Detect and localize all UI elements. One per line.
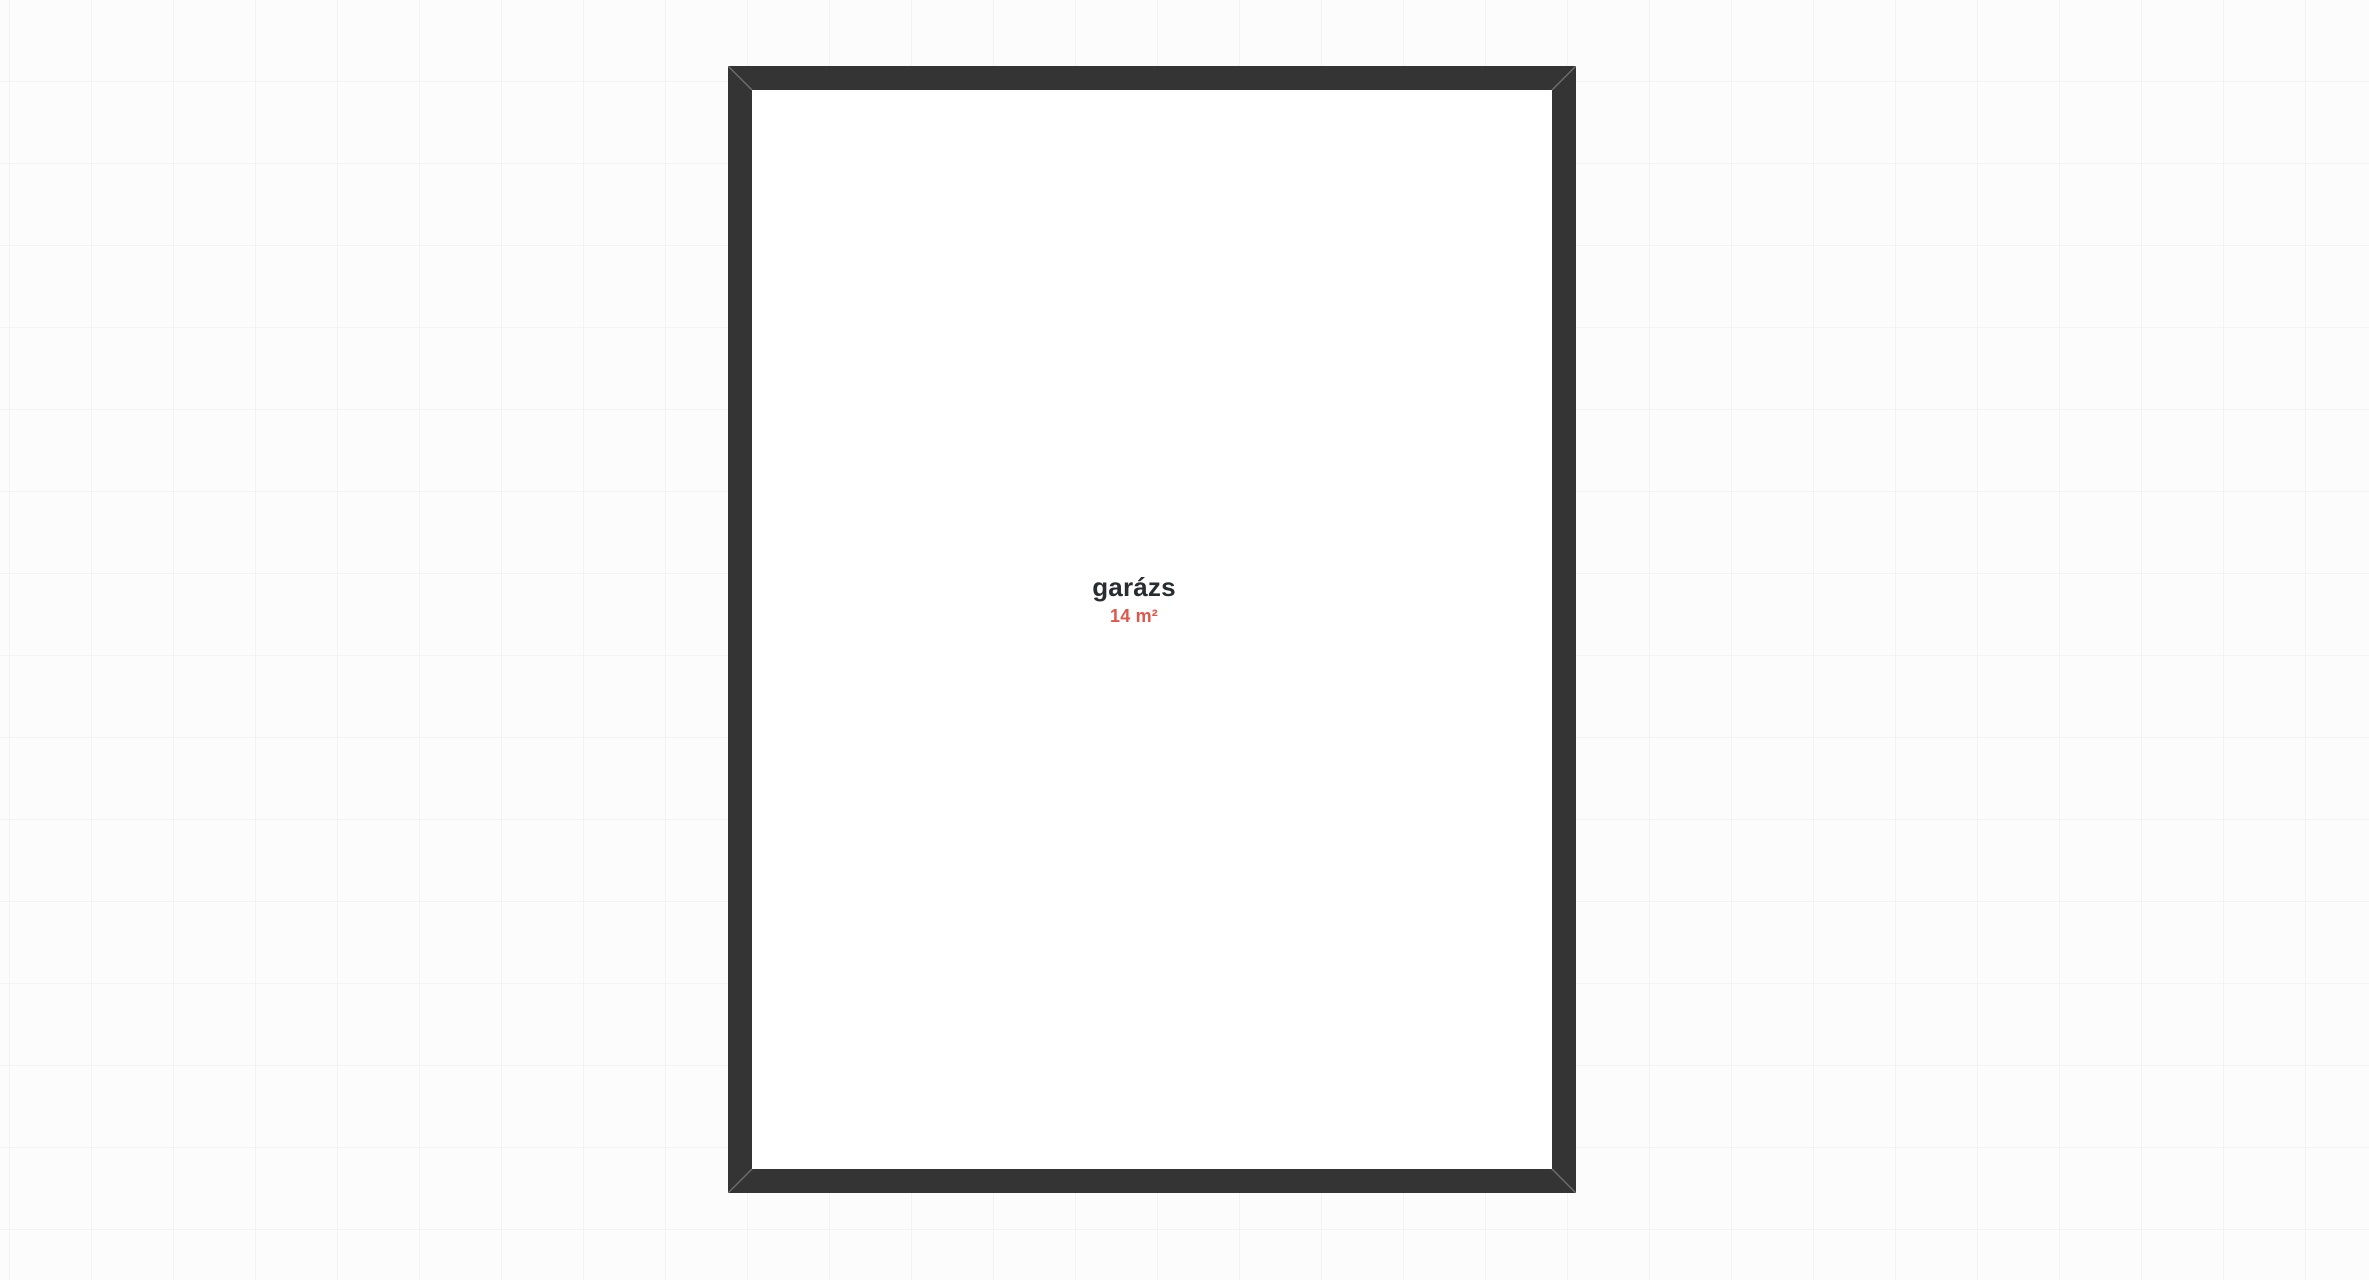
room-name-label: garázs	[1092, 573, 1176, 602]
room-area-label: 14 m²	[1092, 607, 1176, 627]
room-walls[interactable]	[728, 66, 1576, 1193]
floorplan-canvas[interactable]: garázs 14 m²	[0, 0, 2369, 1280]
room[interactable]: garázs 14 m²	[728, 66, 1576, 1193]
room-label[interactable]: garázs 14 m²	[1092, 573, 1176, 626]
